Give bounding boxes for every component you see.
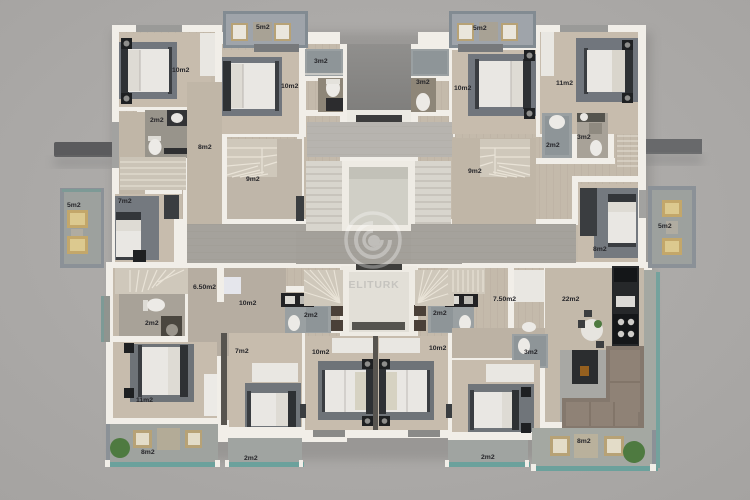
svg-text:2m2: 2m2 — [150, 117, 164, 124]
svg-text:3m2: 3m2 — [416, 79, 430, 86]
svg-text:10m2: 10m2 — [454, 85, 472, 92]
svg-text:11m2: 11m2 — [556, 80, 573, 87]
svg-text:5m2: 5m2 — [658, 223, 672, 230]
svg-text:9m2: 9m2 — [246, 176, 260, 183]
svg-text:5m2: 5m2 — [473, 25, 487, 32]
svg-text:10m2: 10m2 — [281, 83, 299, 90]
svg-text:11m2: 11m2 — [136, 397, 153, 404]
svg-text:2m2: 2m2 — [546, 142, 560, 149]
svg-text:10m2: 10m2 — [312, 349, 330, 356]
svg-text:2m2: 2m2 — [304, 312, 318, 319]
svg-text:ELITURK: ELITURK — [348, 279, 399, 291]
svg-text:3m2: 3m2 — [314, 58, 328, 65]
svg-text:8m2: 8m2 — [593, 246, 607, 253]
svg-text:7m2: 7m2 — [235, 348, 249, 355]
svg-text:6.50m2: 6.50m2 — [193, 284, 216, 291]
svg-text:2m2: 2m2 — [145, 320, 159, 327]
svg-text:7.50m2: 7.50m2 — [493, 296, 516, 303]
svg-text:8m2: 8m2 — [198, 144, 212, 151]
svg-text:7m2: 7m2 — [118, 198, 132, 205]
svg-text:10m2: 10m2 — [429, 345, 447, 352]
svg-text:9m2: 9m2 — [468, 168, 482, 175]
svg-text:3m2: 3m2 — [524, 349, 538, 356]
svg-text:10m2: 10m2 — [172, 67, 190, 74]
svg-text:5m2: 5m2 — [67, 202, 81, 209]
svg-text:8m2: 8m2 — [577, 438, 591, 445]
svg-text:22m2: 22m2 — [562, 296, 580, 303]
svg-text:5m2: 5m2 — [256, 24, 270, 31]
svg-text:3m2: 3m2 — [577, 134, 591, 141]
svg-text:10m2: 10m2 — [239, 300, 257, 307]
svg-text:2m2: 2m2 — [481, 454, 495, 461]
svg-text:2m2: 2m2 — [244, 455, 258, 462]
svg-text:8m2: 8m2 — [141, 449, 155, 456]
svg-text:2m2: 2m2 — [433, 310, 447, 317]
